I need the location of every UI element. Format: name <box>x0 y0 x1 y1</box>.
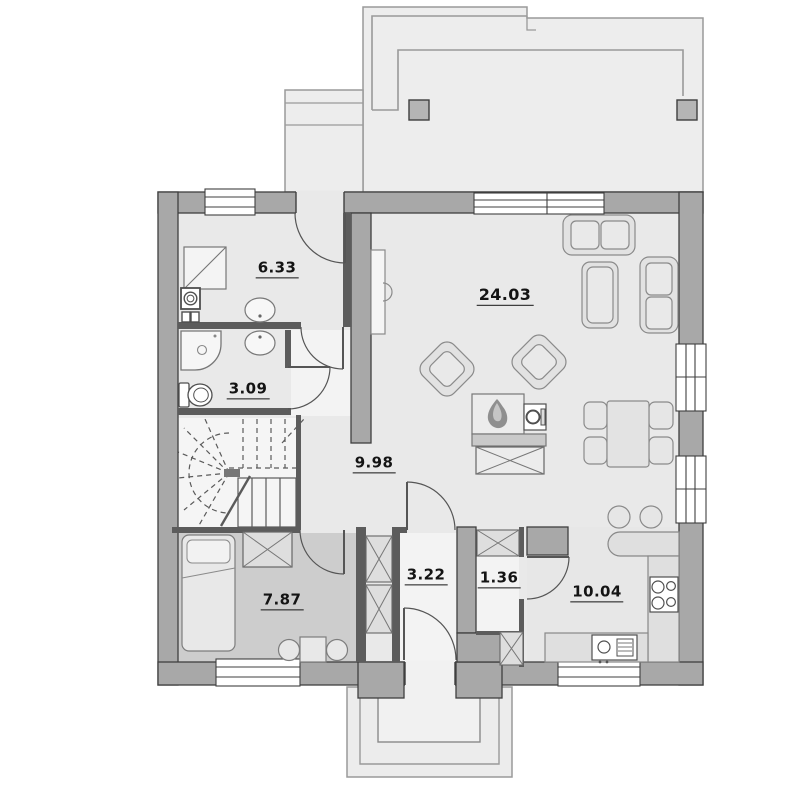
terrace-post-right <box>677 100 697 120</box>
room-label-hall: 9.98 <box>353 454 396 473</box>
sofa-side <box>640 257 678 333</box>
floor-plan-page: 6.33 3.09 24.03 9.98 7.87 3.22 1.36 10.0… <box>0 0 800 800</box>
bar-counter <box>608 532 679 556</box>
washing-machine-icon <box>181 288 200 309</box>
wardrobe-bedroom <box>243 532 292 567</box>
room-label-kitchen: 10.04 <box>570 583 623 602</box>
sink-icon <box>592 635 637 663</box>
window-living-2 <box>676 456 706 523</box>
terrace-post-left <box>409 100 429 120</box>
dining-table <box>607 401 649 467</box>
wall-living-west <box>351 213 371 443</box>
room-label-living-room: 24.03 <box>477 286 534 306</box>
window-utility <box>205 189 255 215</box>
toilet-icon <box>179 383 212 407</box>
room-label-bathroom: 3.09 <box>227 380 270 399</box>
terrace <box>285 7 703 192</box>
window-kitchen <box>558 659 640 686</box>
cooktop-icon <box>650 577 678 612</box>
wall-kitchen-block <box>527 527 568 555</box>
wall-vestibule-east <box>457 527 476 633</box>
window-living-1 <box>676 344 706 411</box>
room-label-pantry: 1.36 <box>478 569 521 588</box>
chaise-lounge <box>582 262 618 328</box>
floor-vestibule <box>400 533 457 662</box>
floorplan-drawing <box>0 0 800 800</box>
window-bedroom <box>216 659 300 686</box>
sofa-loveseat <box>563 215 635 255</box>
bed <box>182 535 235 651</box>
fireplace <box>472 394 546 474</box>
dressing-table <box>279 637 348 662</box>
washbasin-icon <box>245 331 275 355</box>
room-label-utility-room: 6.33 <box>256 259 299 278</box>
room-label-bedroom: 7.87 <box>261 591 304 610</box>
utility-sink-icon <box>245 298 275 322</box>
terrace-glass-door <box>474 193 604 214</box>
room-label-vestibule: 3.22 <box>405 566 448 585</box>
